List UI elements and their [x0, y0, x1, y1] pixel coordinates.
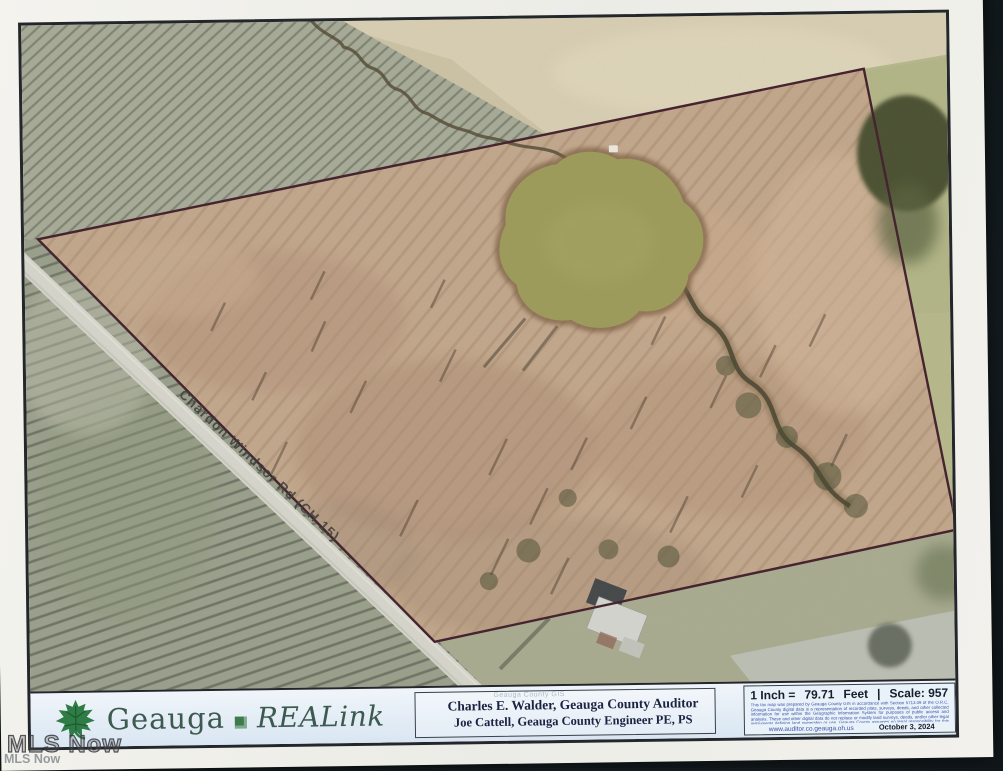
engineer-name: Joe Cattell, Geauga County Engineer PE, … — [454, 712, 693, 730]
scale-box: 1 Inch = 79.71 Feet | Scale: 957 This ta… — [743, 683, 956, 736]
map-date: October 3, 2024 — [879, 722, 949, 732]
scale-unit: Feet — [843, 687, 868, 701]
scale-separator: | — [877, 687, 881, 701]
mls-now-watermark-small: MLS Now — [4, 752, 60, 766]
map-footer: Geauga REALink Geauga County GIS Charles… — [30, 679, 956, 748]
printed-map-page: Chardon Windsor Rd (CH 15) Geauga REALin… — [0, 0, 993, 771]
officials-box: Geauga County GIS Charles E. Walder, Gea… — [414, 688, 716, 738]
scale-prefix: 1 Inch = — [750, 688, 795, 703]
map-frame: Chardon Windsor Rd (CH 15) Geauga REALin… — [18, 10, 959, 751]
disclaimer-text: This tax map was prepared by Geauga Coun… — [750, 701, 948, 725]
geauga-county-seal — [406, 690, 407, 742]
green-square-icon — [235, 716, 247, 728]
aerial-map: Chardon Windsor Rd (CH 15) — [21, 13, 955, 692]
disclaimer-wrap: This tax map was prepared by Geauga Coun… — [750, 701, 948, 725]
scale-ratio: Scale: 957 — [889, 686, 948, 701]
scale-value: 79.71 — [804, 687, 834, 701]
photo-grain — [21, 13, 955, 692]
auditor-website-url: www.auditor.co.geauga.oh.us — [751, 725, 854, 733]
brand-product-name: REALink — [257, 699, 385, 734]
ghost-watermark: Geauga County GIS — [493, 691, 565, 699]
scale-line: 1 Inch = 79.71 Feet | Scale: 957 — [750, 686, 948, 703]
aerial-map-graphic: Chardon Windsor Rd (CH 15) — [21, 13, 955, 692]
brand-county-name: Geauga — [107, 701, 226, 737]
